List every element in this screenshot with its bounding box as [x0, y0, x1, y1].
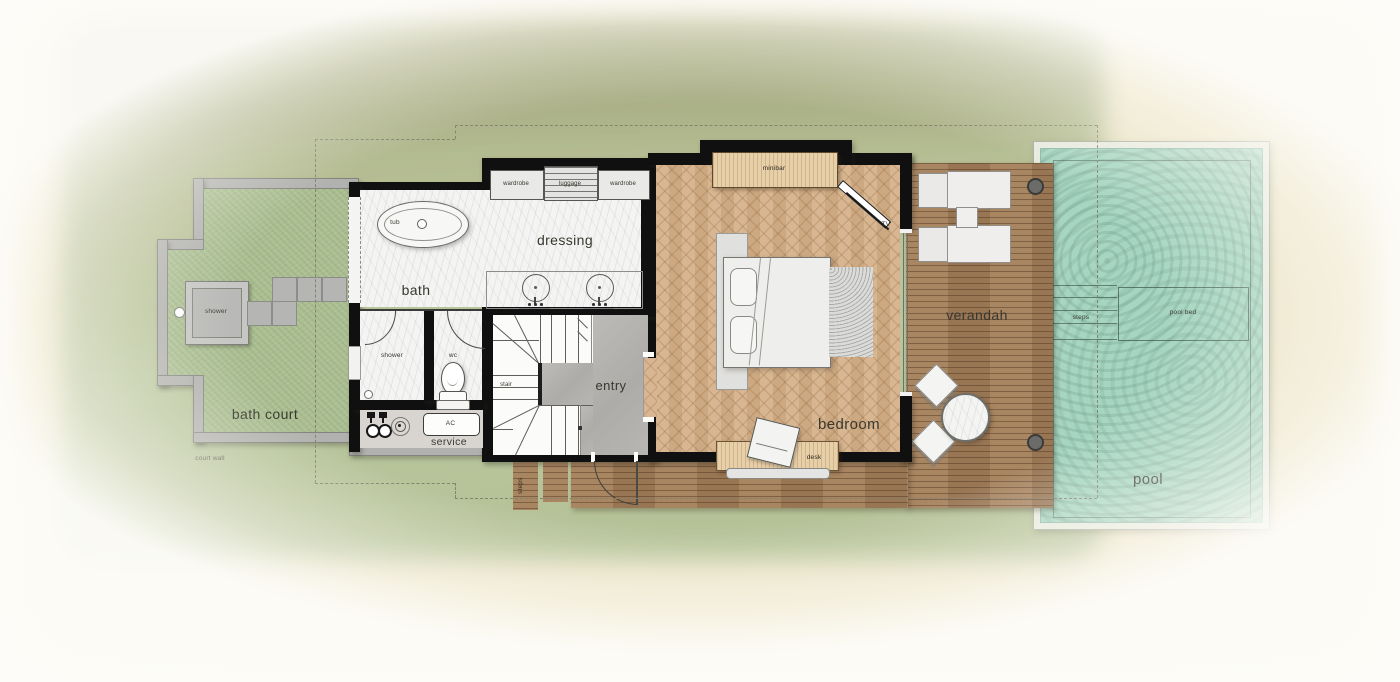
outdoor-shower-label: shower — [193, 309, 239, 316]
shower-head-icon — [174, 307, 185, 318]
bath-label: bath — [388, 283, 444, 297]
rug — [829, 267, 873, 357]
luggage-label: luggage — [544, 181, 596, 187]
side-table — [956, 207, 978, 228]
floor-plan: steps pool bed pool steps verandah — [0, 0, 1400, 682]
pillow — [730, 268, 757, 306]
pool-steps-label: steps — [1062, 315, 1100, 322]
deck-step-2 — [543, 460, 568, 502]
vanity-counter — [486, 271, 643, 309]
pool-bed-label: pool bed — [1150, 310, 1216, 317]
stair-label: stair — [494, 382, 518, 388]
grass-shade — [90, 22, 1080, 132]
wardrobe-left-label: wardrobe — [490, 181, 542, 187]
tub-label: tub — [386, 220, 404, 227]
pool-label: pool — [1118, 472, 1178, 487]
court-wall-label: court wall — [188, 456, 232, 463]
bath-court-door — [348, 197, 361, 303]
wardrobe-right-label: wardrobe — [598, 181, 648, 187]
shower-room-label: shower — [371, 353, 413, 360]
deck-light — [1027, 178, 1044, 195]
verandah-label: verandah — [937, 308, 1017, 322]
bedroom-label: bedroom — [812, 417, 886, 432]
shower-window — [348, 346, 361, 380]
service-label: service — [427, 437, 471, 448]
floor-drain-icon — [364, 390, 373, 399]
tub-faucet-icon — [417, 219, 427, 229]
wc-label: wc — [444, 353, 462, 360]
ac-label: AC — [423, 421, 478, 428]
dressing-label: dressing — [529, 233, 601, 247]
round-table — [941, 393, 990, 442]
deck-light — [1027, 434, 1044, 451]
tv-label: TV — [877, 222, 895, 229]
desk-bay-bench — [726, 468, 830, 479]
desk-label: desk — [798, 455, 830, 462]
minibar-label: minibar — [742, 166, 806, 173]
bedroom-west-doorway — [643, 358, 657, 417]
bath-court-label: bath court — [215, 407, 315, 421]
entry-label: entry — [586, 379, 636, 392]
